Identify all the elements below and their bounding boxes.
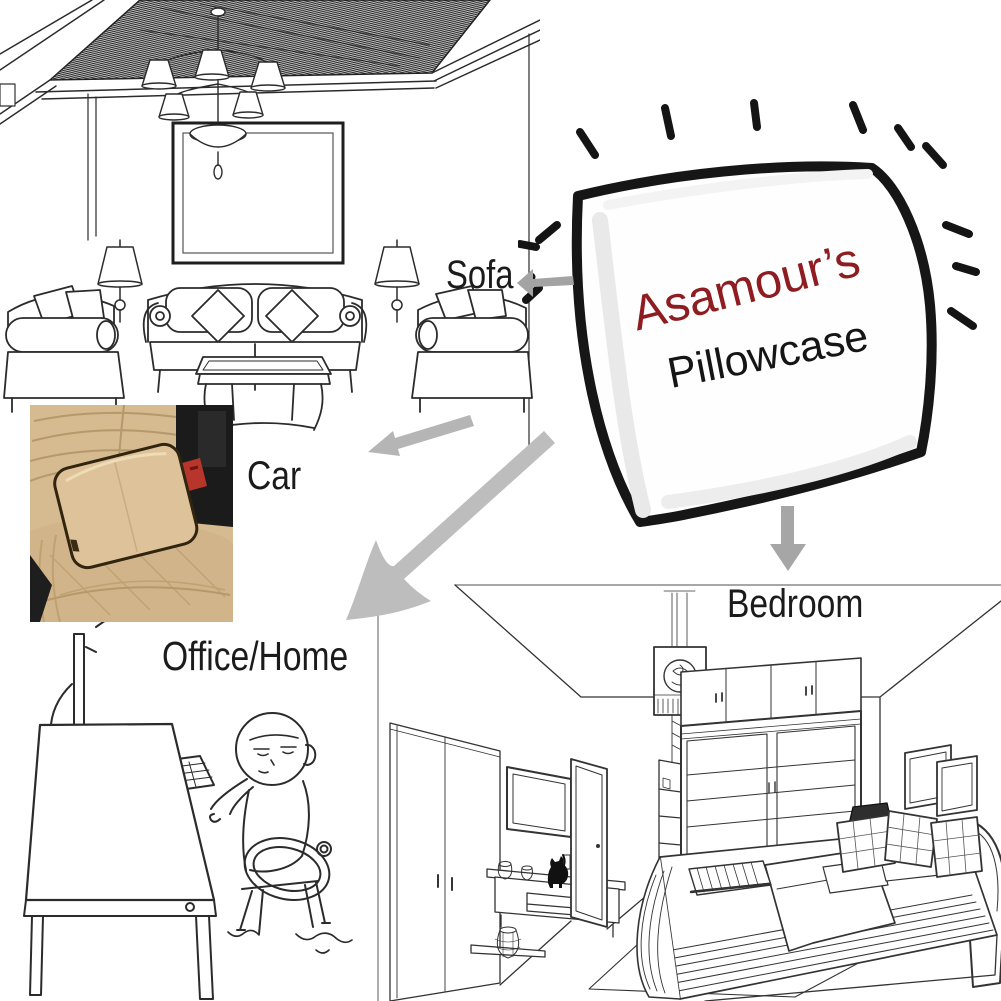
wardrobe xyxy=(390,723,500,1001)
product-infographic: Sofa Car Office/Home Bedroom Asamour’s P… xyxy=(0,0,1001,1001)
living-room-sketch xyxy=(0,0,540,462)
wall-pictures xyxy=(905,745,977,816)
car-seat-photo xyxy=(30,405,233,622)
bedroom-label: Bedroom xyxy=(727,584,863,624)
armchair-left xyxy=(4,286,124,412)
motion-dashes xyxy=(86,620,106,652)
armchair-right xyxy=(412,286,532,412)
car-label: Car xyxy=(247,456,301,496)
chair xyxy=(237,829,336,934)
sofa-label: Sofa xyxy=(446,255,513,295)
ground-squiggles xyxy=(228,930,352,953)
office-home-label: Office/Home xyxy=(162,636,348,677)
wall-tv xyxy=(507,767,571,837)
bedroom-sketch xyxy=(375,583,1001,1001)
person-cartoon xyxy=(210,713,315,871)
door xyxy=(571,759,607,927)
table-lamp-right xyxy=(375,240,419,322)
picture-frame xyxy=(173,123,343,263)
